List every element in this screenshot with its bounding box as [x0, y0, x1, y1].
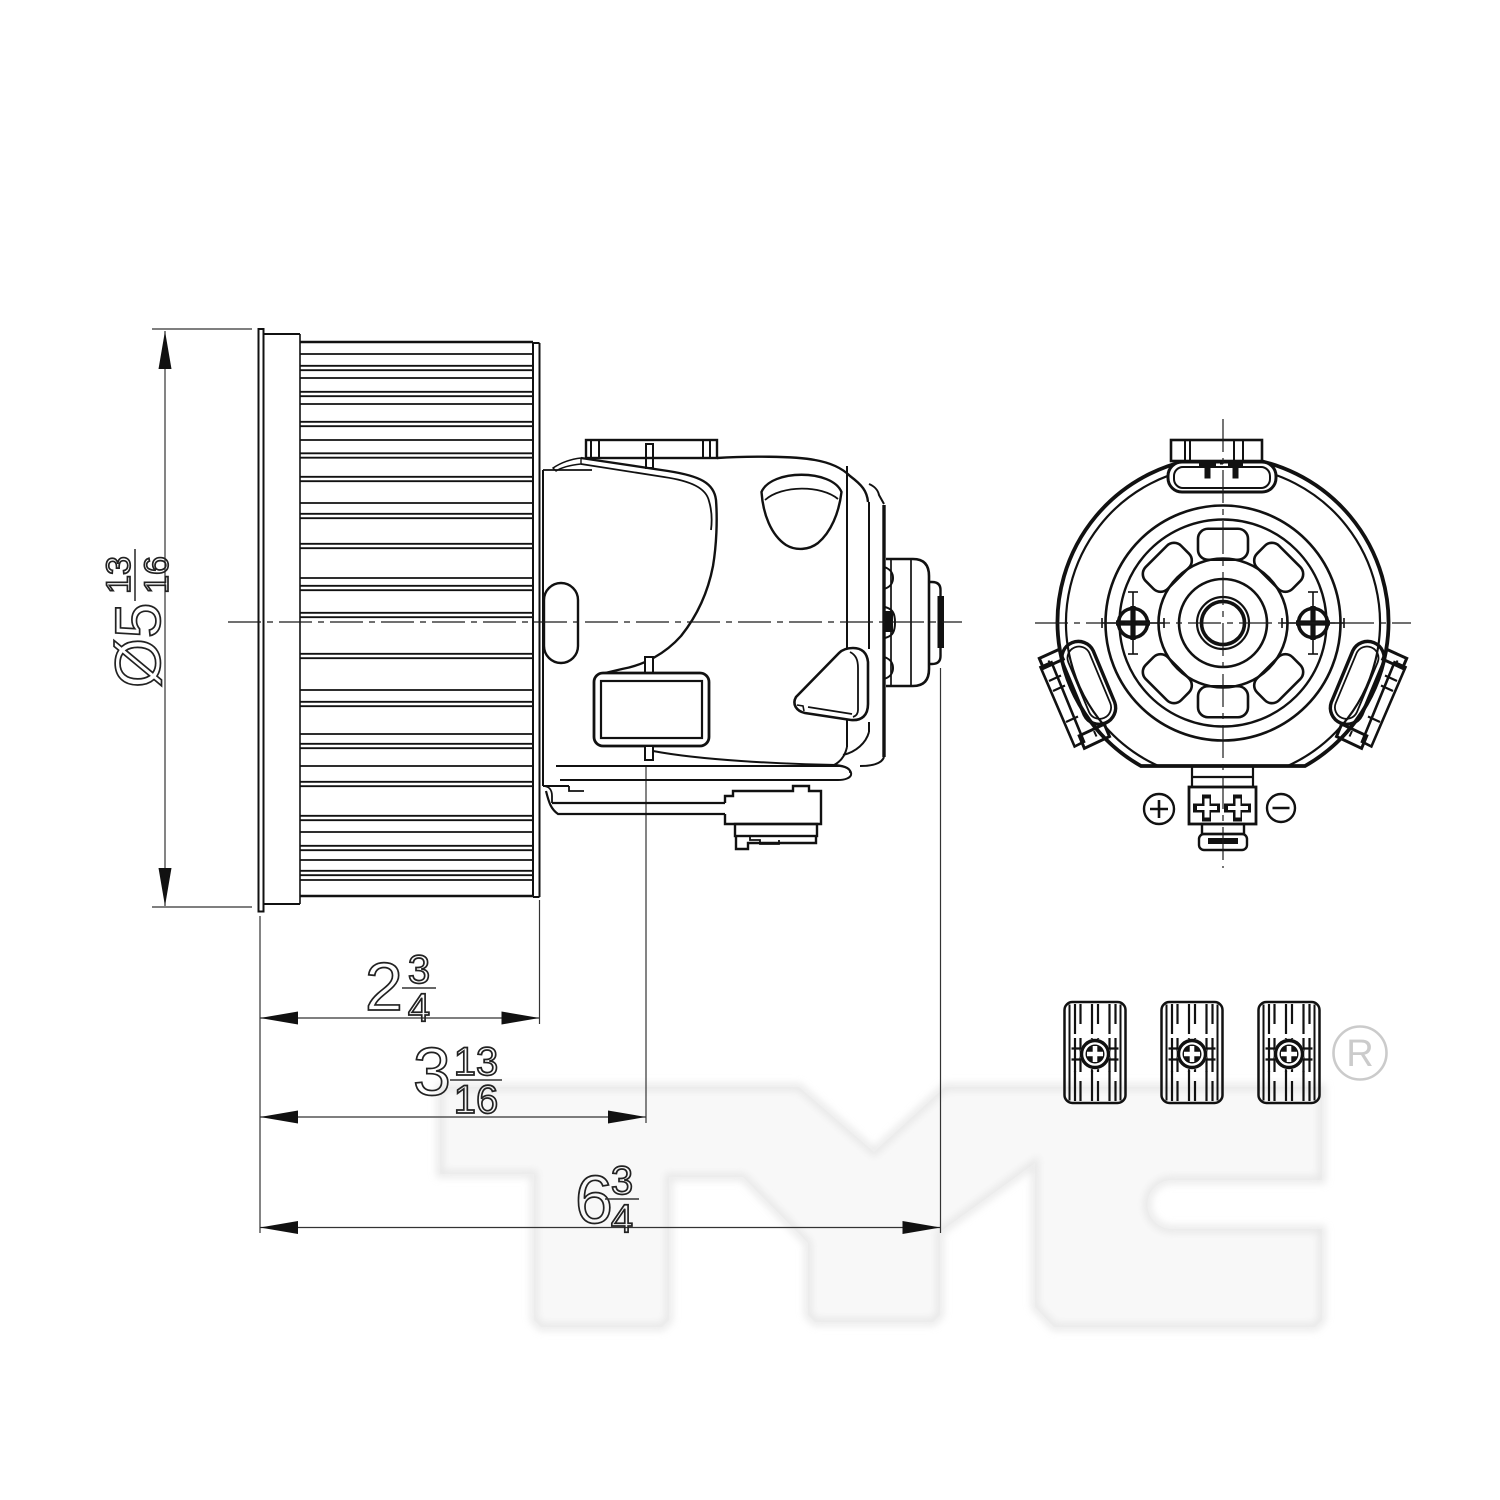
svg-text:16: 16	[138, 556, 176, 594]
svg-text:R: R	[1346, 1033, 1373, 1075]
svg-text:6: 6	[575, 1162, 613, 1238]
svg-text:Ø5: Ø5	[102, 603, 174, 688]
svg-text:4: 4	[611, 1197, 633, 1241]
svg-text:2: 2	[365, 949, 403, 1025]
svg-text:3: 3	[413, 1034, 451, 1110]
svg-text:4: 4	[408, 986, 430, 1030]
svg-text:16: 16	[454, 1078, 499, 1122]
svg-text:13: 13	[100, 556, 138, 594]
